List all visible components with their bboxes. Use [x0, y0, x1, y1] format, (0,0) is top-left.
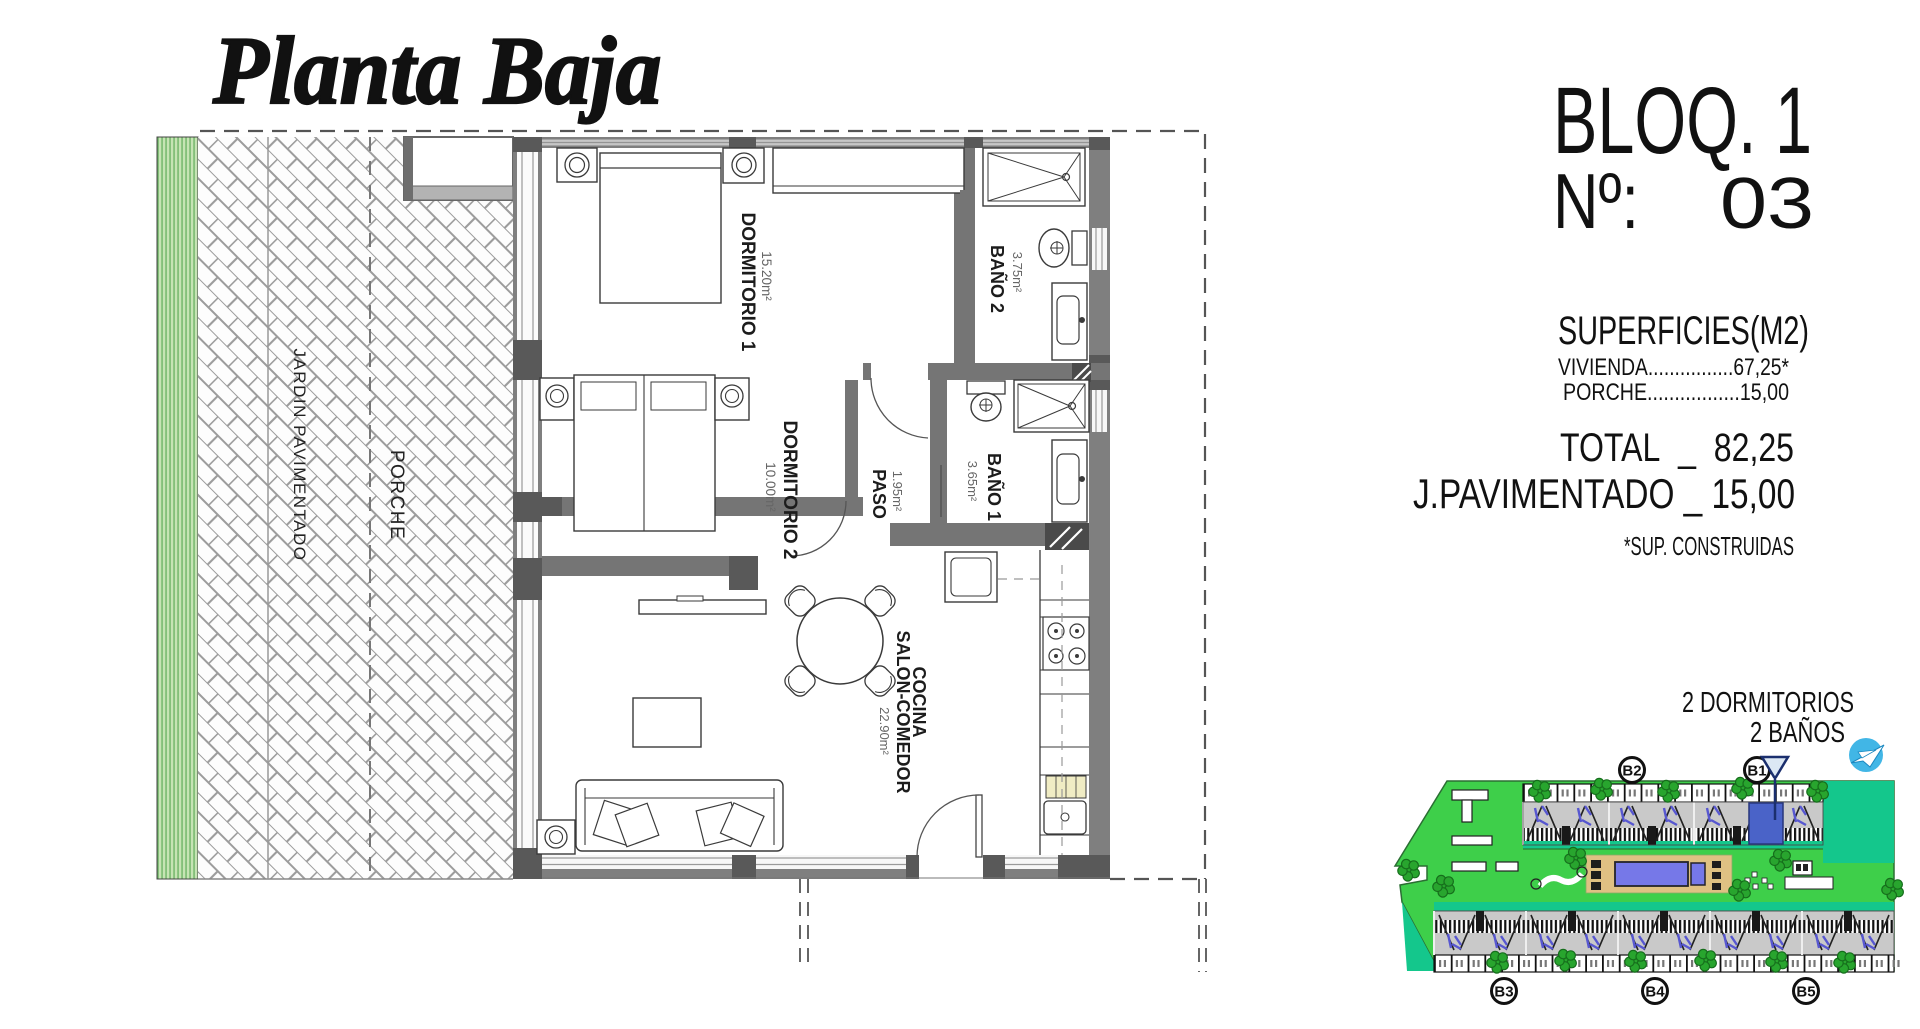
svg-text:B5: B5 — [1796, 984, 1815, 1001]
svg-text:DORMITORIO 1: DORMITORIO 1 — [737, 213, 758, 352]
svg-text:2 BAÑOS: 2 BAÑOS — [1750, 715, 1845, 749]
svg-text:PORCHE.................15,00: PORCHE.................15,00 — [1563, 379, 1789, 406]
svg-text:15.20m²: 15.20m² — [759, 251, 774, 301]
svg-text:10.00m²: 10.00m² — [763, 462, 778, 512]
svg-text:PORCHE: PORCHE — [386, 450, 407, 540]
svg-text:Nº:: Nº: — [1553, 157, 1639, 245]
svg-text:BAÑO 2: BAÑO 2 — [987, 245, 1008, 313]
svg-text:SUPERFICIES(M2): SUPERFICIES(M2) — [1558, 309, 1809, 353]
svg-text:J.PAVIMENTADO _ 15,00: J.PAVIMENTADO _ 15,00 — [1413, 470, 1795, 517]
svg-text:Planta Baja: Planta Baja — [212, 19, 661, 125]
svg-text:22.90m²: 22.90m² — [877, 707, 892, 755]
svg-text:B3: B3 — [1494, 984, 1513, 1001]
svg-text:3.75m²: 3.75m² — [1010, 252, 1025, 293]
svg-text:SALON-COMEDOR: SALON-COMEDOR — [893, 631, 913, 794]
svg-text:1.95m²: 1.95m² — [890, 471, 905, 512]
svg-text:JARDIN PAVIMENTADO: JARDIN PAVIMENTADO — [290, 348, 309, 561]
svg-text:DORMITORIO 2: DORMITORIO 2 — [779, 421, 800, 560]
svg-text:B1: B1 — [1747, 763, 1766, 780]
svg-text:VIVIENDA................67,25*: VIVIENDA................67,25* — [1558, 354, 1789, 381]
svg-text:PASO: PASO — [869, 469, 889, 519]
svg-text:TOTAL _ 82,25: TOTAL _ 82,25 — [1560, 426, 1794, 470]
svg-text:*SUP. CONSTRUIDAS: *SUP. CONSTRUIDAS — [1624, 531, 1794, 561]
svg-text:BAÑO 1: BAÑO 1 — [984, 453, 1005, 521]
svg-text:2 DORMITORIOS: 2 DORMITORIOS — [1682, 687, 1854, 719]
svg-text:3.65m²: 3.65m² — [965, 461, 980, 502]
svg-text:B4: B4 — [1645, 984, 1665, 1001]
svg-text:B2: B2 — [1622, 763, 1641, 780]
svg-text:03: 03 — [1720, 164, 1814, 244]
